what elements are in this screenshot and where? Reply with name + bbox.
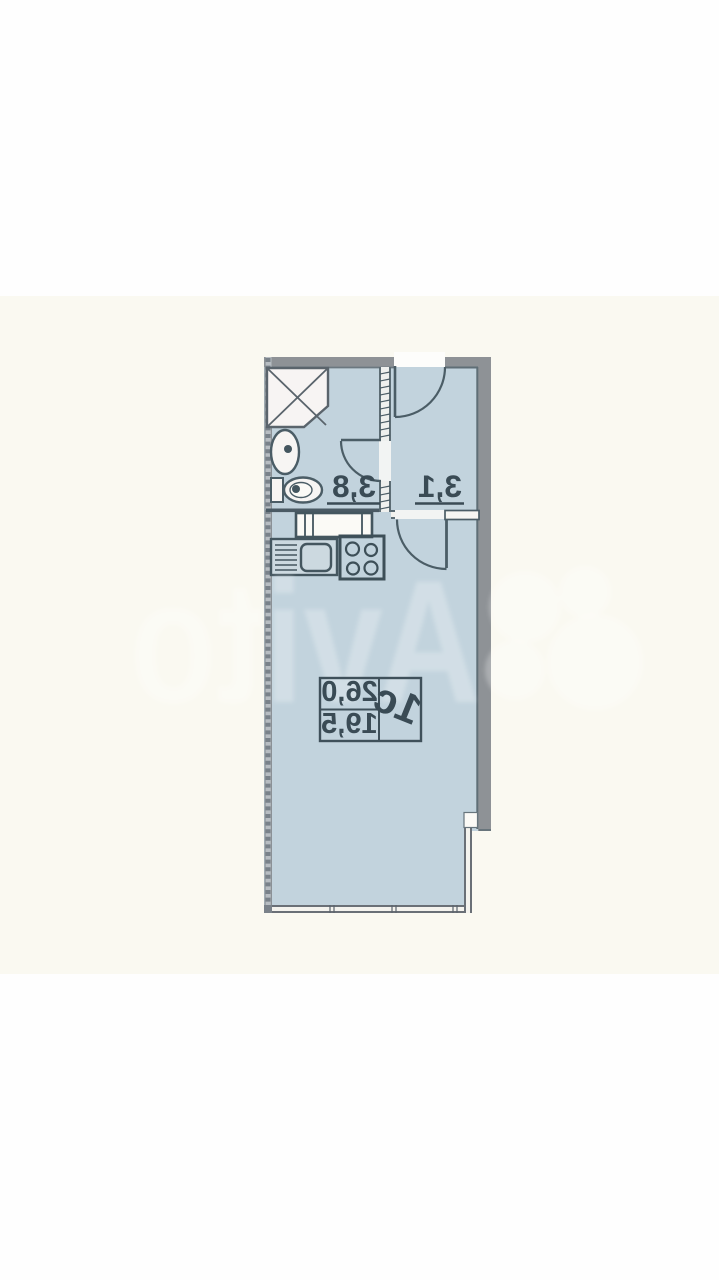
svg-text:26,0: 26,0 — [321, 676, 377, 708]
svg-text:Avito: Avito — [130, 544, 480, 739]
svg-text:3,8: 3,8 — [332, 468, 376, 504]
svg-text:3,1: 3,1 — [418, 468, 462, 504]
